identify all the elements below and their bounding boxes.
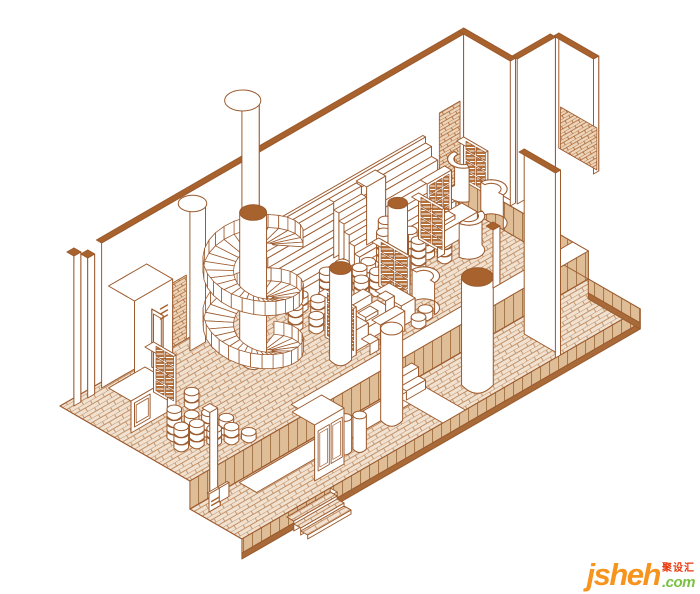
watermark-cjk-text: 聚设汇 bbox=[662, 564, 695, 574]
watermark-logo: jsheh 聚设汇 .com bbox=[587, 559, 695, 590]
screenshot-root: jsheh 聚设汇 .com bbox=[0, 0, 700, 594]
watermark-brand-text: jsheh bbox=[587, 559, 660, 590]
watermark-tld-text: .com bbox=[662, 575, 695, 590]
axonometric-illustration bbox=[0, 0, 700, 594]
floor-plan-drawing bbox=[0, 0, 700, 594]
